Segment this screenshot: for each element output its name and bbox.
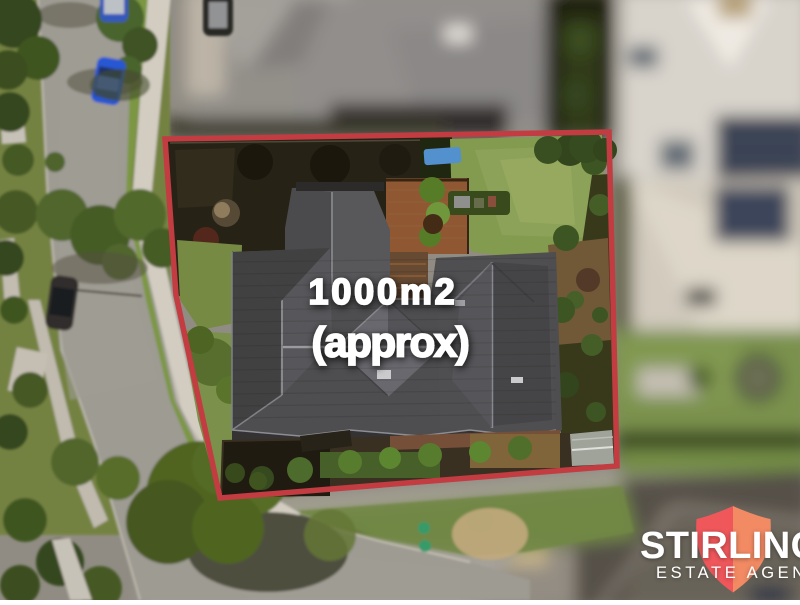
svg-text:(approx): (approx) xyxy=(312,319,469,366)
svg-text:STIRLING: STIRLING xyxy=(640,525,800,567)
svg-text:ESTATE AGENT: ESTATE AGENT xyxy=(656,564,800,582)
svg-text:1000m2: 1000m2 xyxy=(309,271,458,312)
